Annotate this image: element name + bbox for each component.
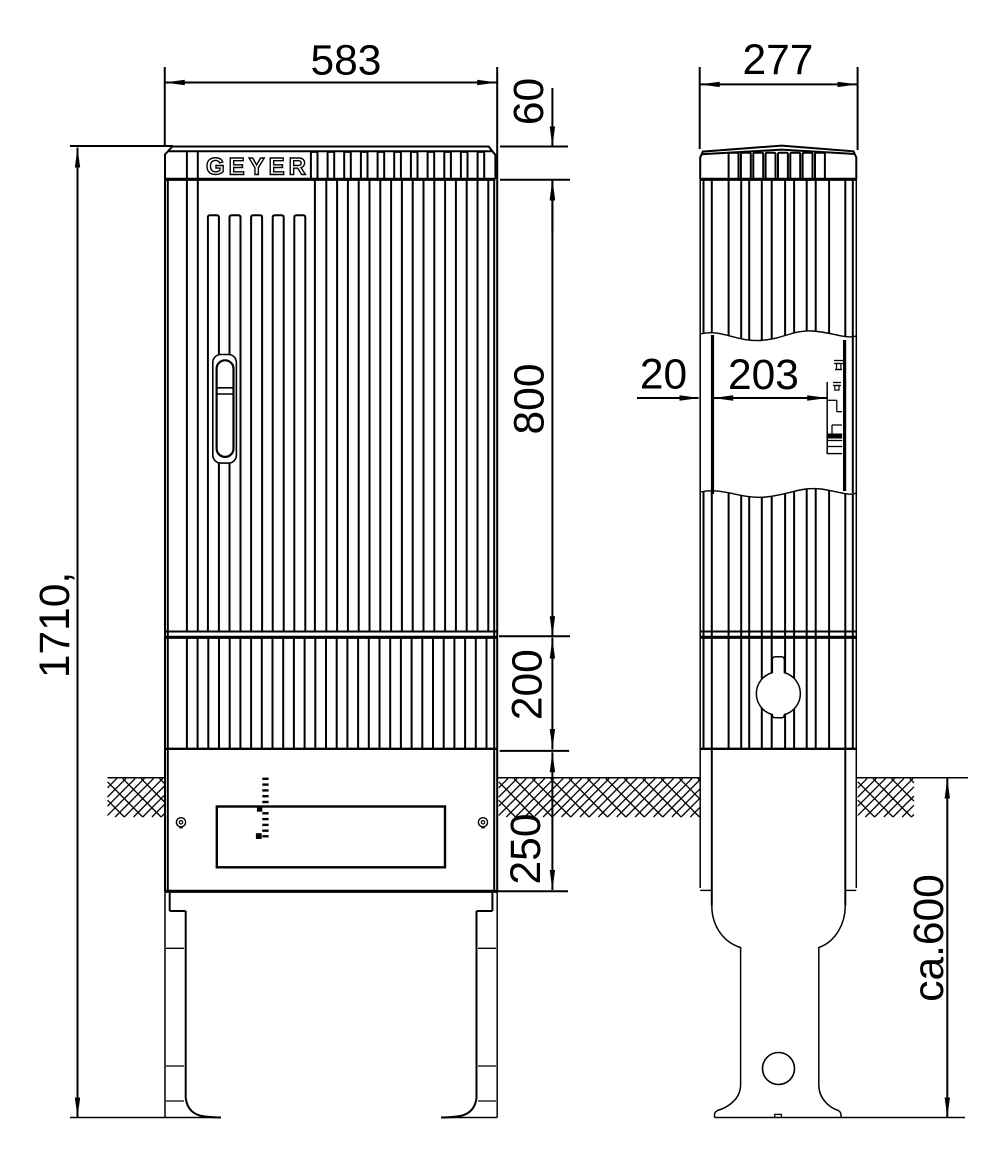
svg-text:200: 200 — [505, 649, 552, 720]
svg-text:1710,: 1710, — [32, 572, 79, 678]
svg-text:60: 60 — [506, 78, 553, 125]
svg-text:203: 203 — [728, 352, 799, 399]
svg-text:GEYER: GEYER — [206, 154, 310, 181]
svg-text:20: 20 — [640, 352, 687, 399]
svg-text:583: 583 — [311, 37, 382, 84]
svg-text:250: 250 — [503, 814, 550, 885]
svg-text:ca.600: ca.600 — [906, 874, 953, 1002]
svg-text:277: 277 — [743, 37, 814, 84]
svg-text:800: 800 — [506, 364, 553, 435]
